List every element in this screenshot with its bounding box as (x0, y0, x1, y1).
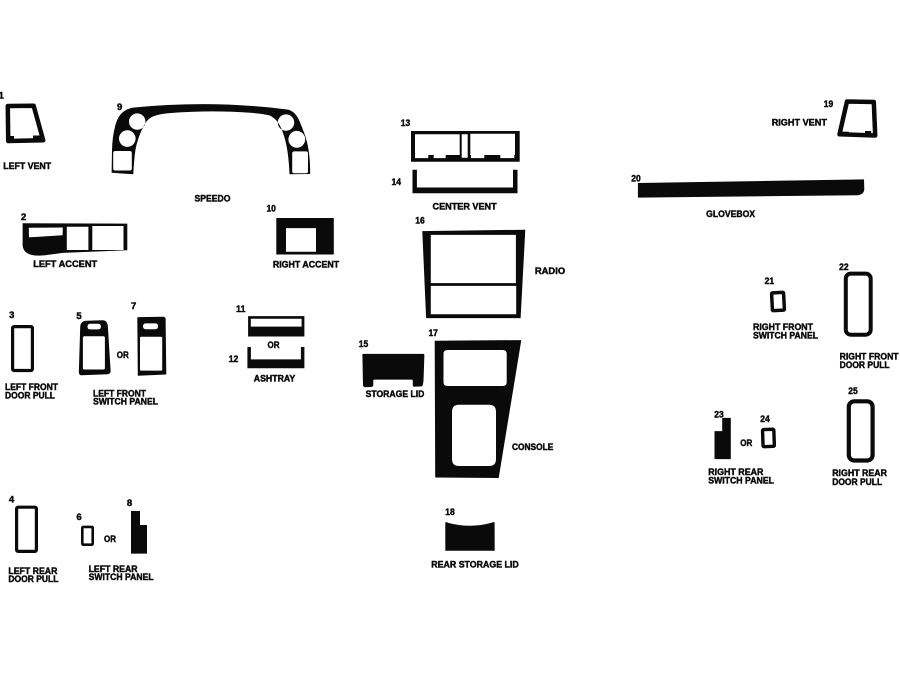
svg-text:16: 16 (415, 216, 425, 227)
svg-text:10: 10 (266, 204, 276, 215)
svg-text:DOOR PULL: DOOR PULL (8, 574, 58, 585)
svg-text:17: 17 (428, 328, 438, 339)
svg-text:8: 8 (127, 498, 132, 509)
svg-text:ASHTRAY: ASHTRAY (254, 374, 296, 385)
svg-text:18: 18 (445, 507, 455, 518)
svg-text:OR: OR (268, 340, 280, 351)
svg-text:RIGHT ACCENT: RIGHT ACCENT (273, 260, 339, 271)
svg-text:2: 2 (21, 212, 26, 223)
svg-text:13: 13 (401, 118, 411, 129)
svg-text:OR: OR (104, 534, 116, 545)
svg-text:SWITCH PANEL: SWITCH PANEL (708, 476, 774, 487)
svg-text:22: 22 (839, 262, 849, 273)
svg-text:6: 6 (76, 512, 81, 523)
svg-text:20: 20 (631, 174, 641, 185)
svg-text:LEFT ACCENT: LEFT ACCENT (33, 259, 97, 270)
svg-text:DOOR PULL: DOOR PULL (5, 390, 55, 401)
svg-text:9: 9 (117, 102, 122, 113)
svg-text:11: 11 (236, 304, 246, 315)
svg-text:SWITCH PANEL: SWITCH PANEL (753, 330, 818, 341)
svg-text:7: 7 (131, 301, 136, 312)
svg-text:OR: OR (117, 350, 129, 361)
svg-text:21: 21 (765, 276, 775, 287)
svg-text:12: 12 (229, 354, 239, 365)
svg-text:SWITCH PANEL: SWITCH PANEL (89, 572, 154, 583)
svg-text:REAR STORAGE LID: REAR STORAGE LID (431, 560, 519, 571)
svg-text:CONSOLE: CONSOLE (512, 442, 553, 453)
svg-text:24: 24 (760, 414, 770, 425)
svg-text:25: 25 (848, 386, 858, 397)
svg-text:SWITCH PANEL: SWITCH PANEL (93, 397, 158, 408)
svg-text:5: 5 (76, 311, 82, 322)
svg-text:CENTER VENT: CENTER VENT (433, 201, 497, 212)
svg-text:SPEEDO: SPEEDO (195, 193, 231, 204)
svg-text:14: 14 (392, 177, 402, 188)
svg-text:OR: OR (740, 438, 752, 449)
svg-text:4: 4 (9, 495, 15, 506)
svg-text:DOOR PULL: DOOR PULL (832, 477, 882, 488)
svg-text:GLOVEBOX: GLOVEBOX (706, 209, 756, 220)
svg-text:3: 3 (9, 310, 14, 321)
svg-text:LEFT VENT: LEFT VENT (3, 161, 51, 172)
svg-text:RADIO: RADIO (535, 266, 565, 277)
svg-text:RIGHT VENT: RIGHT VENT (772, 118, 827, 129)
svg-text:STORAGE LID: STORAGE LID (366, 389, 425, 400)
svg-text:15: 15 (359, 339, 369, 350)
svg-text:23: 23 (714, 409, 724, 420)
svg-text:DOOR PULL: DOOR PULL (840, 360, 890, 371)
svg-text:19: 19 (824, 99, 834, 110)
